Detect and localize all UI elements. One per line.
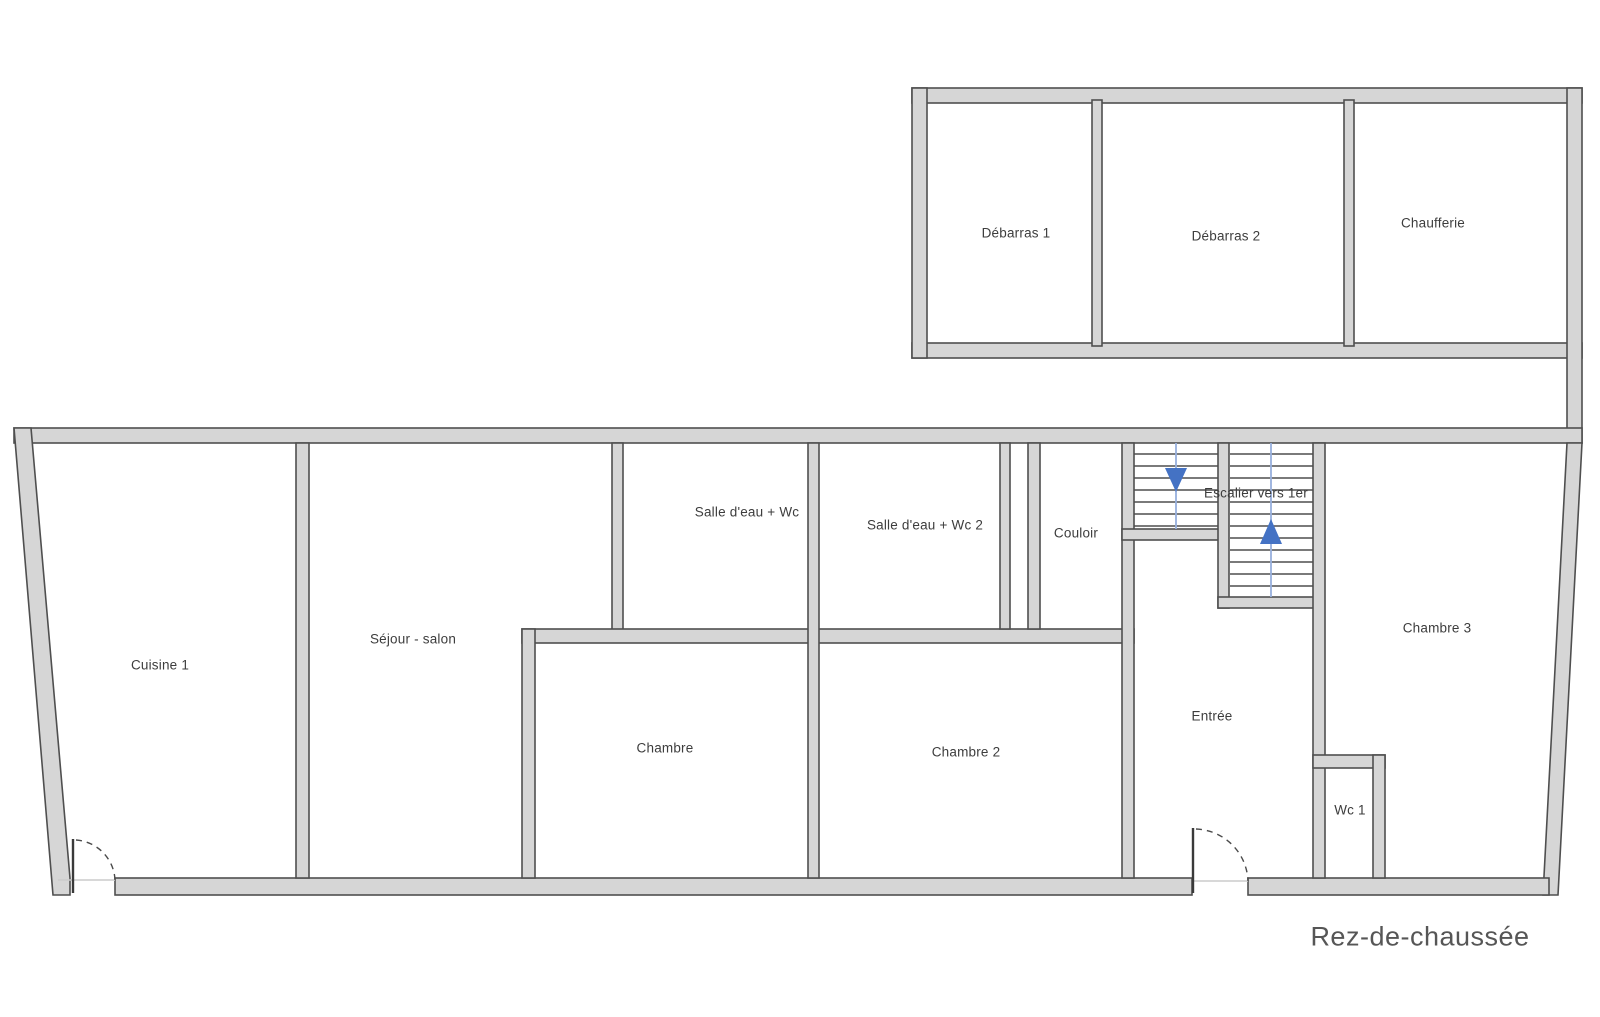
room-label-escalier: Escalier vers 1er — [1204, 486, 1308, 501]
wall-segment — [912, 88, 1582, 103]
wall-segment-slanted — [14, 428, 70, 895]
wall-segment — [1313, 443, 1325, 878]
room-label-cuisine: Cuisine 1 — [131, 658, 189, 673]
wall-segment — [115, 878, 1192, 895]
room-label-entree: Entrée — [1192, 709, 1233, 724]
wall-segment — [1344, 100, 1354, 346]
wall-segment — [808, 443, 819, 878]
room-label-chambre2: Chambre 2 — [932, 745, 1001, 760]
wall-segment — [912, 88, 927, 358]
wall-segment — [1218, 597, 1317, 608]
room-label-chambre: Chambre — [637, 741, 694, 756]
room-label-couloir: Couloir — [1054, 526, 1098, 541]
wall-segment — [1248, 878, 1549, 895]
main-outer-walls — [14, 428, 1582, 895]
stairs-up-arrow-icon — [1260, 519, 1282, 544]
interior-walls — [296, 443, 1385, 878]
door-swing-arc — [76, 840, 115, 880]
floor-caption: Rez-de-chaussée — [1310, 922, 1529, 953]
room-label-wc1: Wc 1 — [1334, 803, 1366, 818]
wall-segment — [14, 428, 1582, 443]
room-label-chaufferie: Chaufferie — [1401, 216, 1465, 231]
room-label-debarras1: Débarras 1 — [982, 226, 1051, 241]
wall-segment — [1028, 443, 1040, 629]
wall-segment — [1122, 443, 1134, 878]
wall-segment — [1092, 100, 1102, 346]
stairs-flight-up — [1230, 443, 1313, 597]
stairs-down-arrow-icon — [1165, 468, 1187, 492]
wall-segment — [522, 629, 535, 878]
wall-segment — [912, 343, 1582, 358]
annex-walls — [912, 88, 1582, 443]
wall-segment — [1218, 443, 1229, 608]
room-label-chambre3: Chambre 3 — [1403, 621, 1472, 636]
wall-segment — [1373, 755, 1385, 878]
wall-segment — [1122, 529, 1225, 540]
room-label-salle-eau-2: Salle d'eau + Wc 2 — [867, 518, 983, 533]
floorplan-drawing — [0, 0, 1600, 1017]
wall-segment-slanted — [1543, 443, 1582, 895]
room-label-sejour: Séjour - salon — [370, 632, 456, 647]
door-entree — [1192, 828, 1248, 893]
room-label-debarras2: Débarras 2 — [1192, 229, 1261, 244]
wall-segment — [612, 443, 623, 633]
room-label-salle-eau-1: Salle d'eau + Wc — [695, 505, 799, 520]
wall-segment — [1000, 443, 1010, 629]
wall-segment — [296, 443, 309, 878]
door-swing-arc — [1196, 829, 1248, 881]
wall-segment — [522, 629, 1134, 643]
floorplan-canvas: Débarras 1 Débarras 2 Chaufferie Cuisine… — [0, 0, 1600, 1017]
wall-segment — [1567, 88, 1582, 443]
